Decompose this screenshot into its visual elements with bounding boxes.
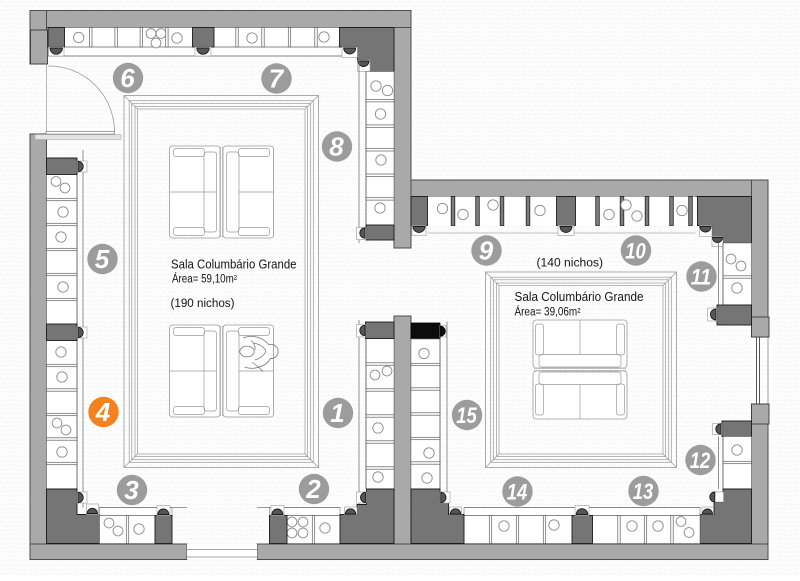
svg-text:Área= 59,10m²: Área= 59,10m² xyxy=(172,273,237,286)
svg-text:15: 15 xyxy=(456,403,477,428)
svg-text:8: 8 xyxy=(329,132,344,162)
svg-text:2: 2 xyxy=(305,474,321,504)
svg-text:12: 12 xyxy=(690,448,711,473)
svg-text:Sala Columbário Grande: Sala Columbário Grande xyxy=(171,257,297,272)
svg-text:(190 nichos): (190 nichos) xyxy=(171,298,235,310)
svg-text:11: 11 xyxy=(691,264,712,289)
svg-text:7: 7 xyxy=(269,64,285,94)
svg-text:14: 14 xyxy=(507,479,528,504)
svg-text:5: 5 xyxy=(95,244,110,274)
svg-text:4: 4 xyxy=(95,397,111,427)
svg-text:Área= 39,06m²: Área= 39,06m² xyxy=(515,306,581,319)
svg-text:6: 6 xyxy=(120,63,135,93)
svg-text:9: 9 xyxy=(479,236,494,266)
svg-text:Sala Columbário Grande: Sala Columbário Grande xyxy=(515,289,644,304)
svg-text:10: 10 xyxy=(625,238,646,263)
svg-text:3: 3 xyxy=(124,475,139,505)
svg-text:1: 1 xyxy=(330,398,344,428)
svg-text:(140 nichos): (140 nichos) xyxy=(537,258,604,270)
svg-text:13: 13 xyxy=(633,479,654,504)
